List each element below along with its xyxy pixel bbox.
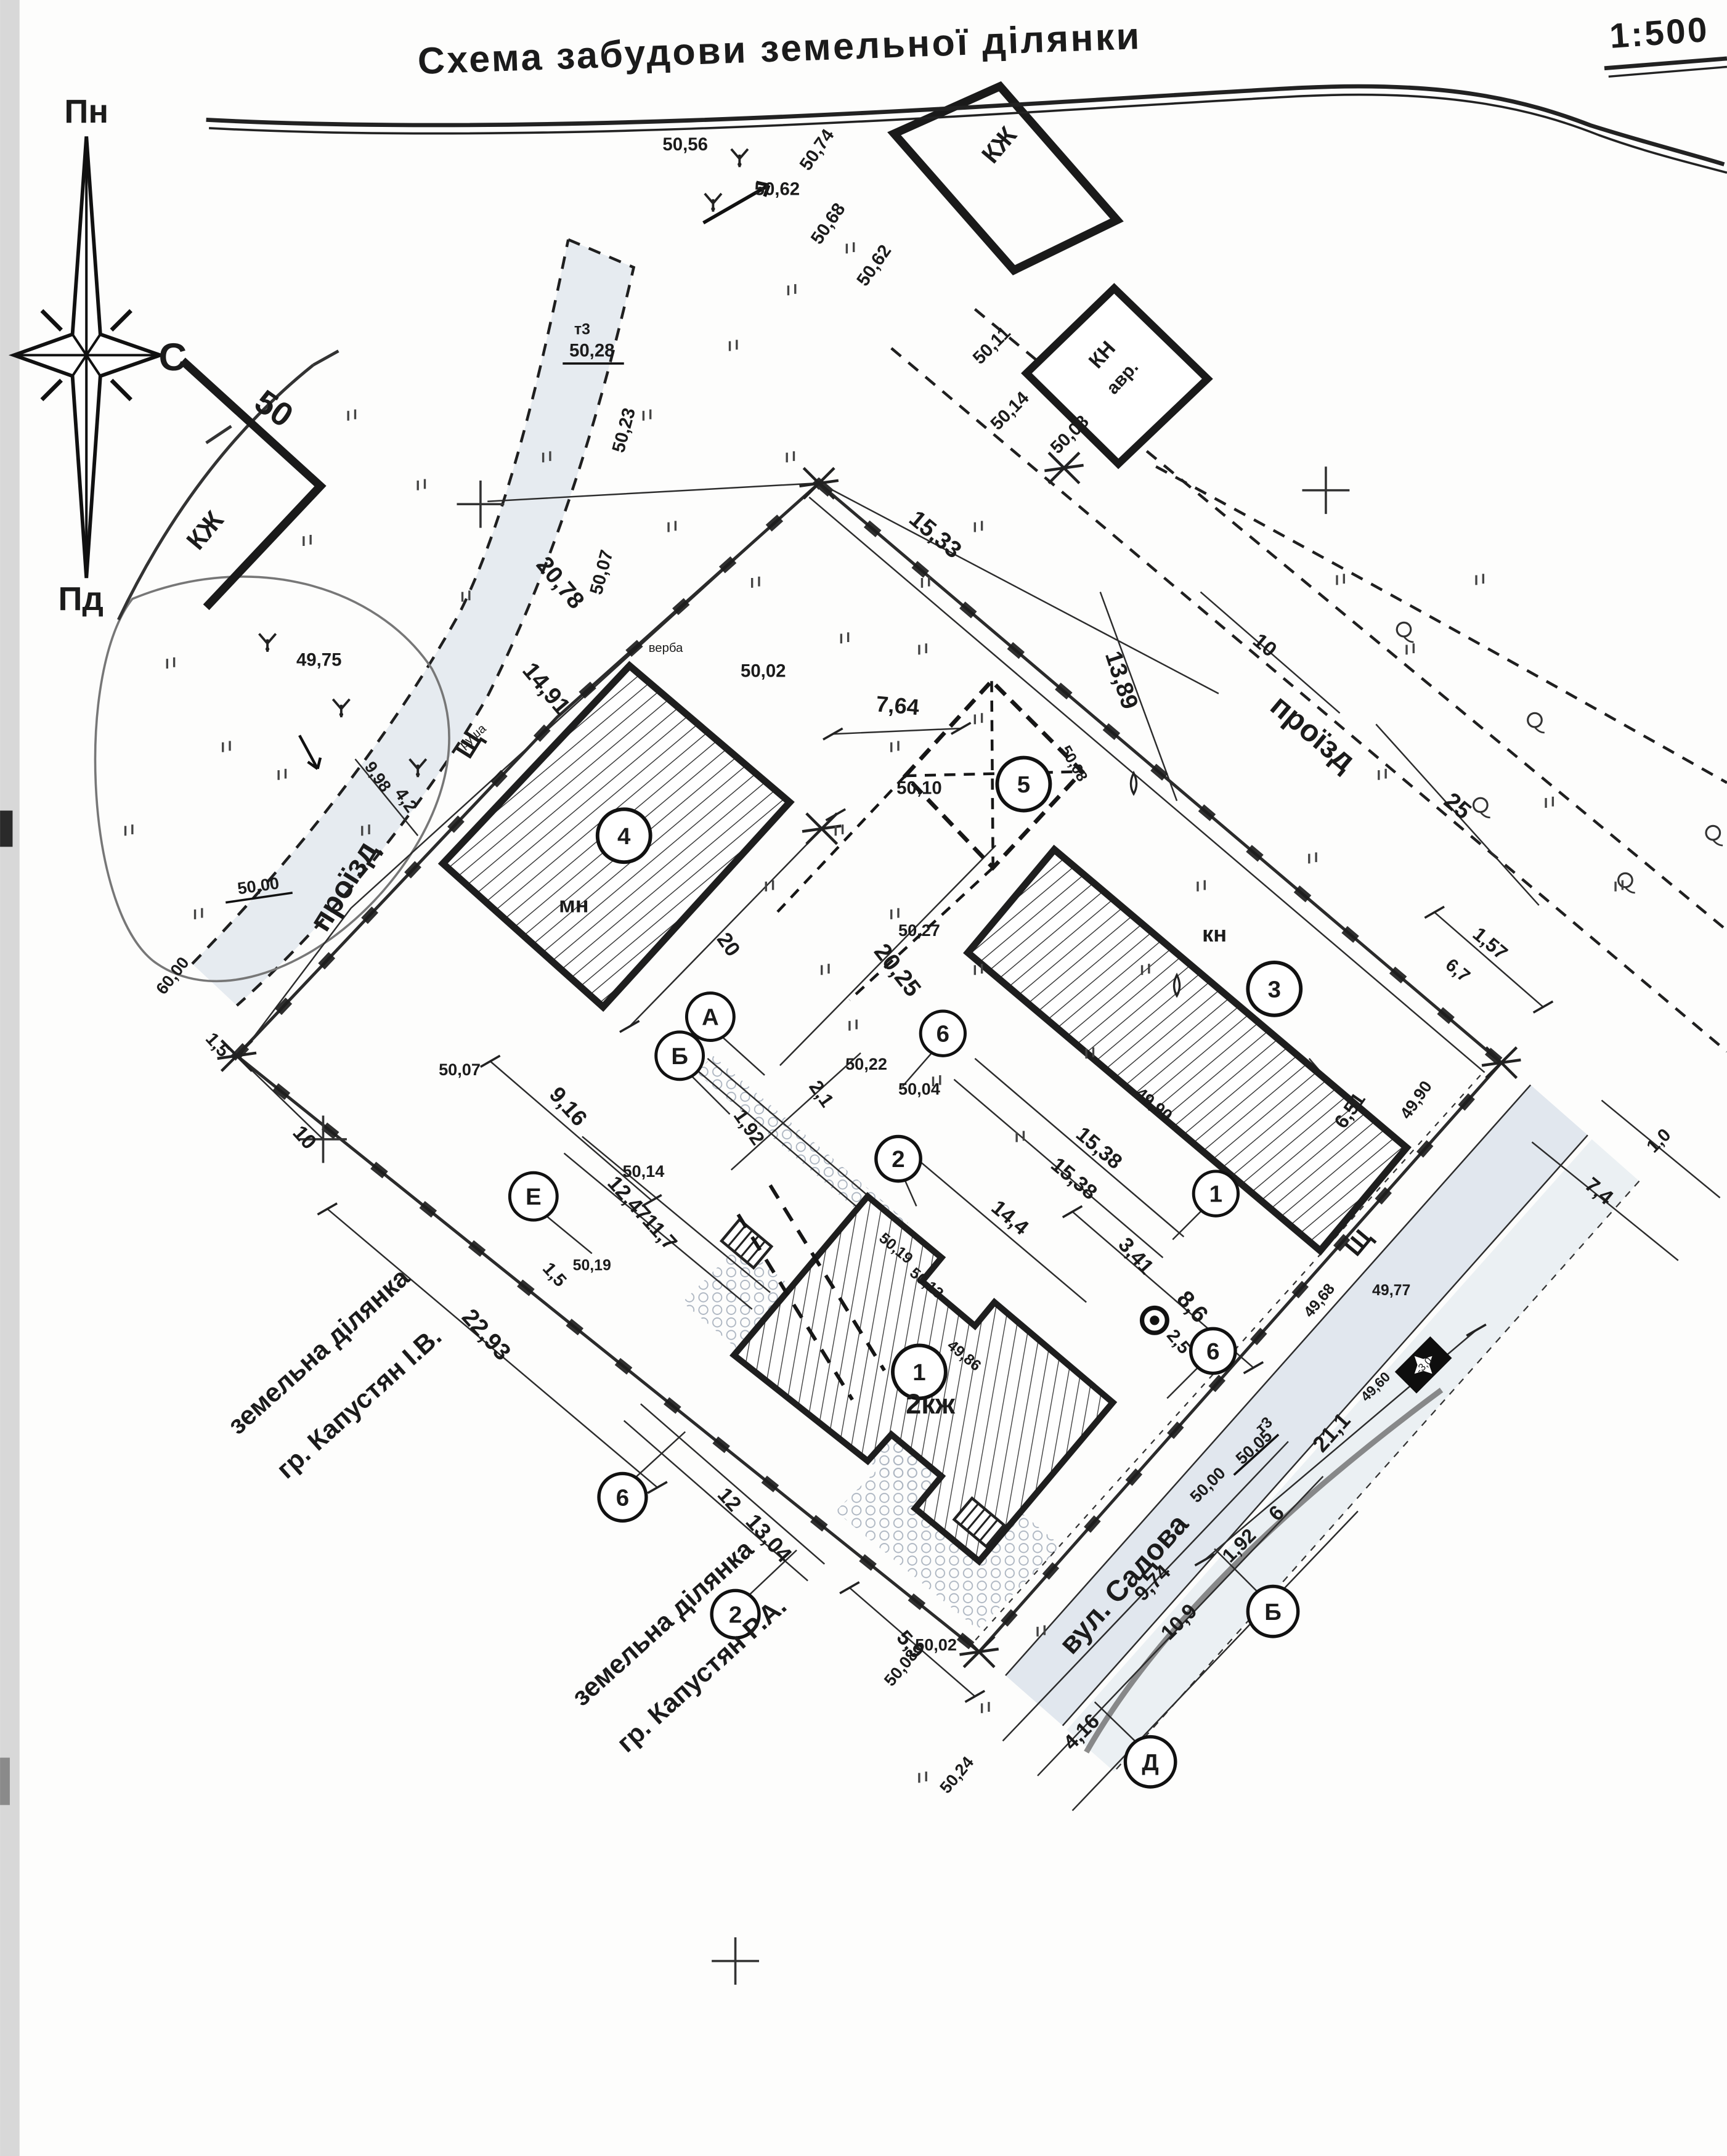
svg-text:5: 5 <box>1017 771 1030 798</box>
elevation: 50,02 <box>915 1635 957 1654</box>
elevation: 50,19 <box>573 1256 611 1274</box>
scanned-site-plan: -3,0 4 5 3 1 2 6 1 6 6 2 А Б Е Б Д 20,78… <box>0 0 1727 2156</box>
elevation: 49,75 <box>296 649 342 670</box>
svg-text:6: 6 <box>1206 1338 1219 1365</box>
svg-text:А: А <box>702 1004 719 1031</box>
svg-text:4: 4 <box>617 823 631 850</box>
elevation: 50,02 <box>741 661 786 681</box>
point-circle-2: 2 <box>876 1136 920 1181</box>
building-label-2kzh: 2кж <box>906 1388 956 1420</box>
point-circle-E: Е <box>510 1173 557 1220</box>
elevation: 49,77 <box>1372 1282 1410 1299</box>
compass-south-label: Пд <box>58 580 103 617</box>
elevation: 50,62 <box>755 179 800 199</box>
elevation: 50,27 <box>898 921 940 940</box>
point-circle-A: А <box>686 993 734 1041</box>
point-circle-5: 5 <box>997 758 1050 811</box>
corner-c-label: С <box>159 336 187 379</box>
svg-text:Б: Б <box>1264 1599 1282 1625</box>
point-circle-1: 1 <box>1193 1171 1238 1216</box>
svg-text:1: 1 <box>912 1359 925 1386</box>
building-label-kn: кн <box>1202 921 1227 946</box>
dim-label: 7,64 <box>875 691 920 720</box>
scan-artifact <box>0 1758 10 1805</box>
elevation: 50,10 <box>896 778 942 798</box>
building-label-mn: мн <box>559 892 589 917</box>
benchmark-value: 50,28 <box>569 341 615 361</box>
elevation: 50,07 <box>439 1060 481 1079</box>
scan-artifact <box>0 811 12 847</box>
point-circle-B2: Б <box>1248 1587 1298 1637</box>
point-circle-B: Б <box>656 1032 704 1080</box>
point-circle-4: 4 <box>598 809 651 862</box>
point-circle-6a: 6 <box>920 1011 965 1056</box>
svg-text:2: 2 <box>892 1146 904 1173</box>
svg-text:Б: Б <box>671 1043 688 1070</box>
scale-label: 1:500 <box>1608 10 1710 55</box>
elevation: 50,56 <box>662 134 708 155</box>
point-circle-3: 3 <box>1248 962 1301 1015</box>
point-circle-6c: 6 <box>599 1473 646 1521</box>
elevation: 50,22 <box>845 1054 887 1073</box>
elevation: 50,04 <box>898 1080 940 1099</box>
scan-left-edge <box>0 0 20 2156</box>
svg-text:1: 1 <box>1209 1181 1222 1208</box>
svg-text:6: 6 <box>616 1484 629 1511</box>
site-plan-drawing: -3,0 4 5 3 1 2 6 1 6 6 2 А Б Е Б Д 20,78… <box>0 0 1727 2156</box>
elevation: 50,14 <box>622 1161 664 1181</box>
benchmark-name: т3 <box>574 320 590 338</box>
compass-north-label: Пн <box>64 93 108 130</box>
svg-text:3: 3 <box>1268 976 1281 1003</box>
svg-text:Е: Е <box>526 1184 542 1210</box>
svg-text:Д: Д <box>1142 1749 1158 1776</box>
point-circle-6b: 6 <box>1191 1328 1235 1373</box>
svg-text:6: 6 <box>937 1021 949 1047</box>
point-circle-D: Д <box>1125 1737 1175 1787</box>
tree-label-willow: верба <box>649 641 683 655</box>
